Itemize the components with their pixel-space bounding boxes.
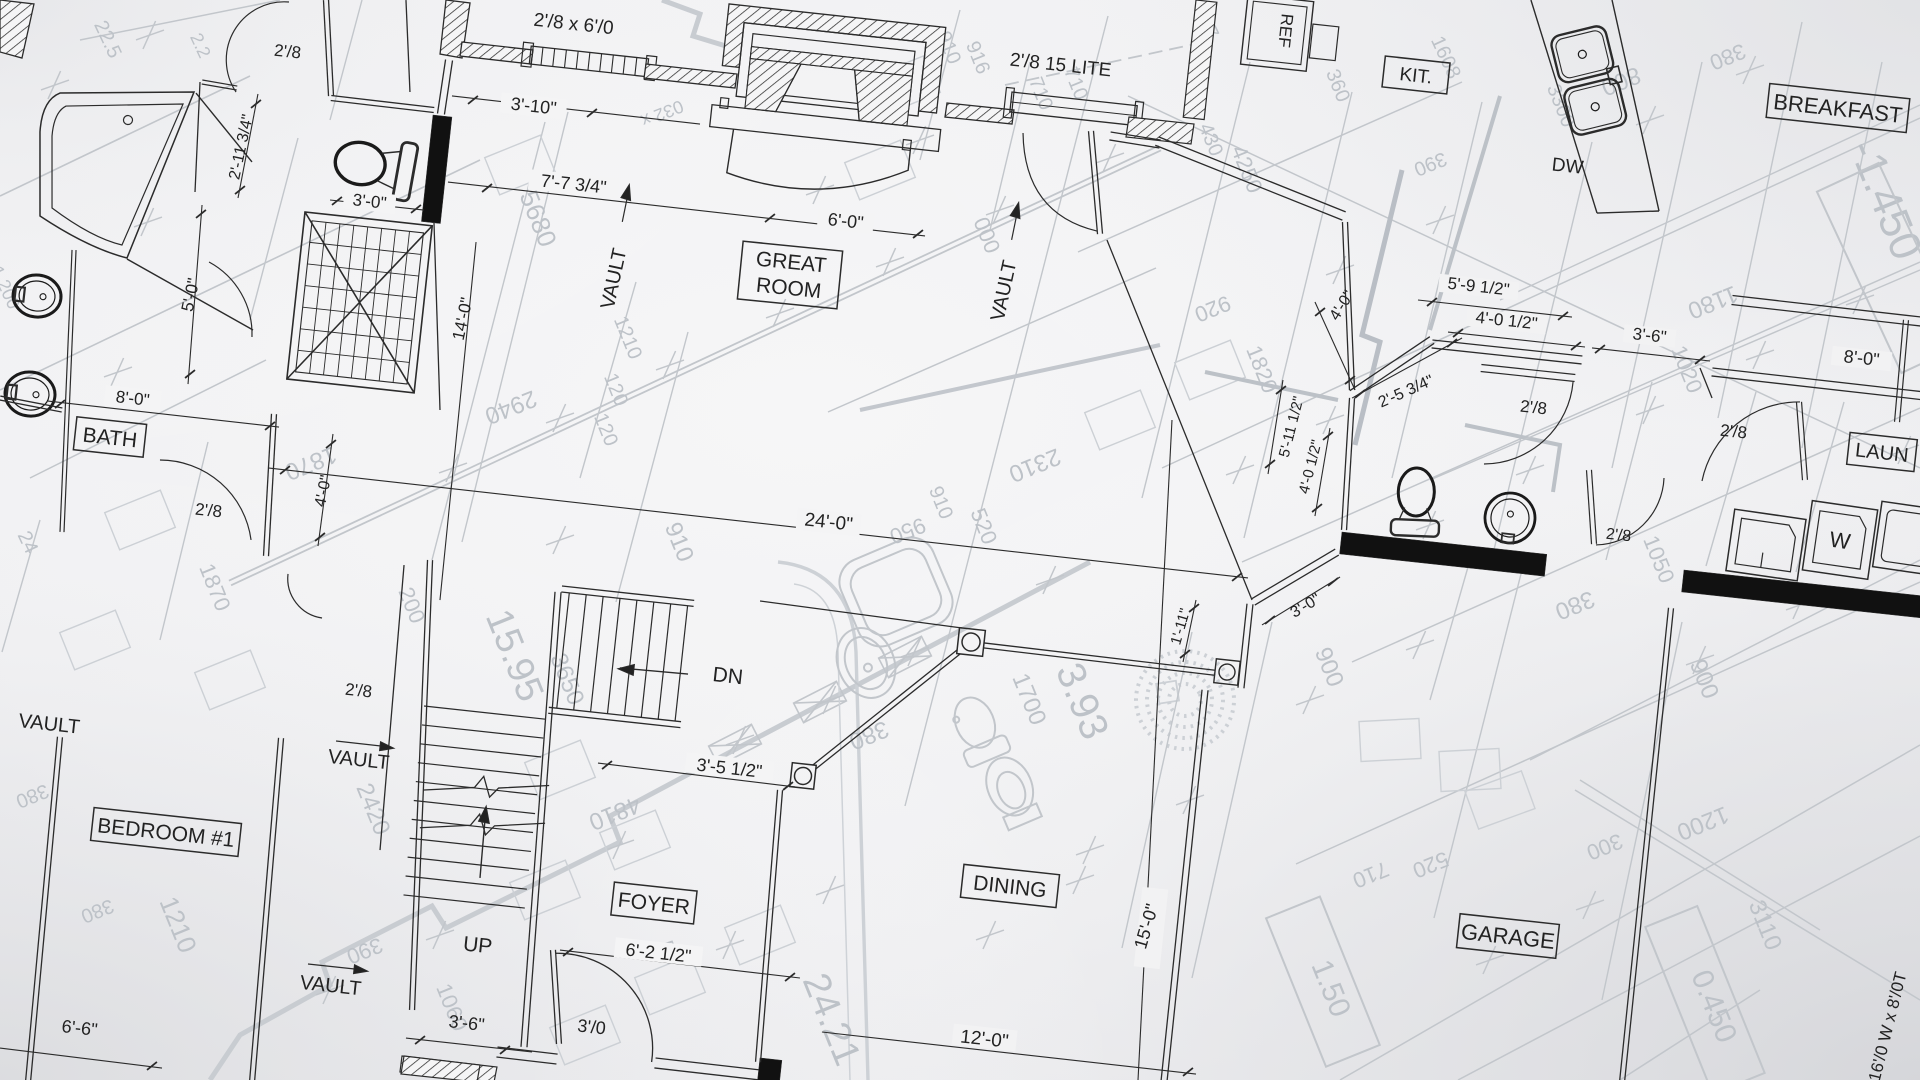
svg-text:2'/8: 2'/8 (1719, 421, 1748, 443)
svg-text:2'/8: 2'/8 (1519, 397, 1548, 419)
svg-text:2'/8: 2'/8 (273, 41, 302, 63)
svg-text:6'-0": 6'-0" (827, 209, 865, 233)
svg-text:3'-0": 3'-0" (352, 190, 388, 213)
svg-text:2'/8: 2'/8 (1605, 526, 1632, 546)
svg-text:REF: REF (1274, 13, 1297, 49)
svg-text:2'/8: 2'/8 (344, 680, 373, 702)
svg-text:8'-0": 8'-0" (1843, 346, 1881, 370)
svg-text:DN: DN (711, 663, 744, 689)
svg-text:W: W (1828, 527, 1852, 555)
svg-text:UP: UP (462, 933, 494, 959)
svg-text:DW: DW (1551, 154, 1585, 178)
svg-text:3'-6": 3'-6" (1632, 324, 1668, 347)
svg-text:2'/8: 2'/8 (194, 500, 223, 522)
svg-text:3'/0: 3'/0 (576, 1016, 606, 1039)
svg-text:8'-0": 8'-0" (115, 387, 151, 410)
svg-text:3'-6": 3'-6" (448, 1011, 486, 1035)
svg-text:KIT.: KIT. (1398, 64, 1433, 88)
svg-text:6'-6": 6'-6" (61, 1016, 99, 1040)
